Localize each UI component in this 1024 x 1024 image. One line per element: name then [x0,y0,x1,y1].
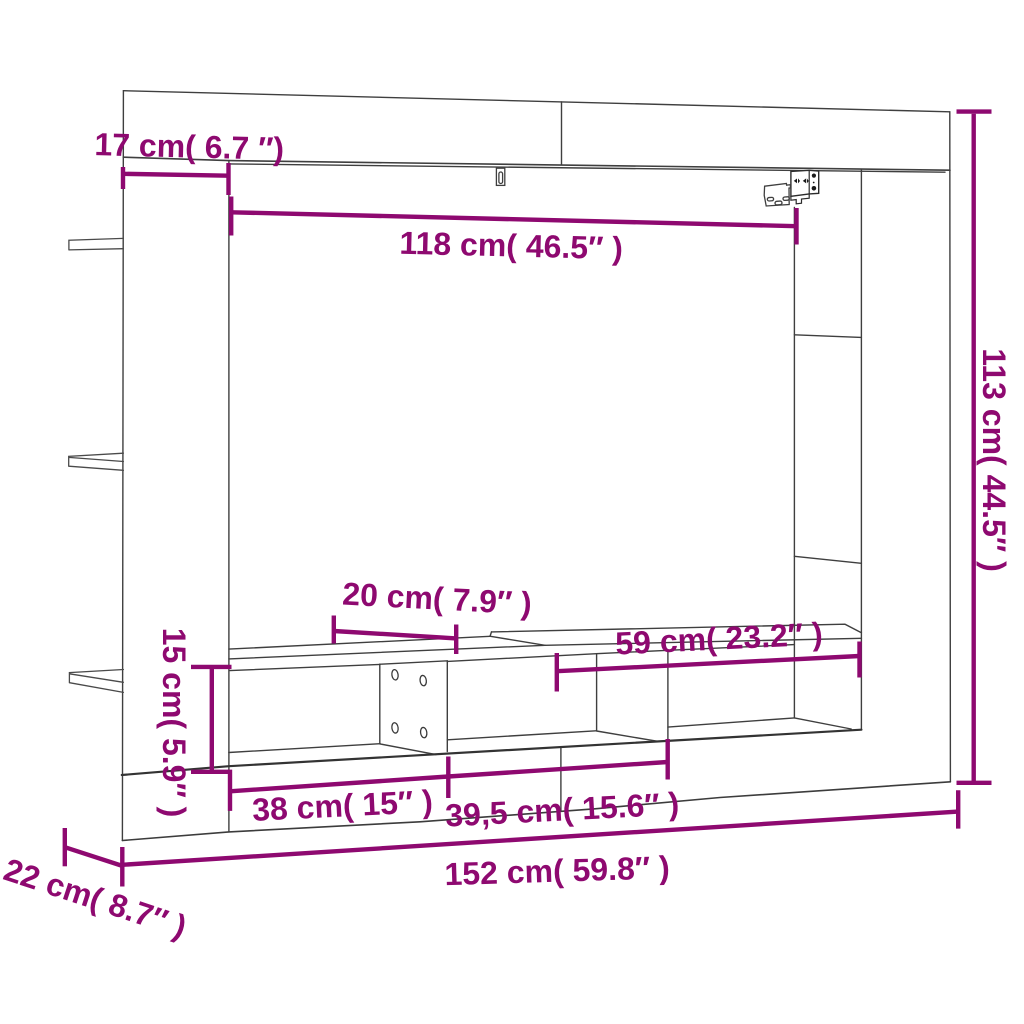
svg-text:15 cm( 5.9″ ): 15 cm( 5.9″ ) [156,628,192,818]
svg-text:152 cm( 59.8″ ): 152 cm( 59.8″ ) [444,849,670,892]
svg-text:113 cm( 44.5″ ): 113 cm( 44.5″ ) [976,348,1012,571]
svg-text:118 cm( 46.5″ ): 118 cm( 46.5″ ) [399,225,623,266]
svg-text:17 cm( 6.7 ″): 17 cm( 6.7 ″) [94,126,284,167]
